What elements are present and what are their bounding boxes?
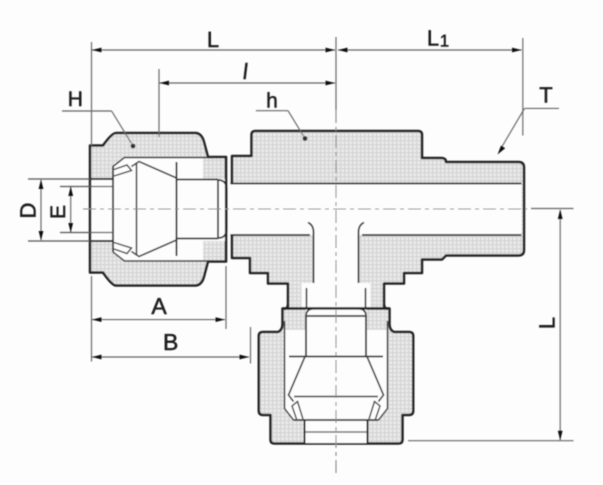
svg-text:D: D: [15, 203, 40, 219]
svg-text:1: 1: [440, 32, 449, 51]
svg-text:L: L: [427, 26, 439, 51]
svg-text:A: A: [151, 293, 167, 319]
svg-text:H: H: [68, 88, 83, 111]
svg-text:h: h: [266, 90, 278, 113]
svg-text:E: E: [47, 205, 70, 219]
svg-text:B: B: [163, 329, 178, 355]
svg-text:L: L: [207, 27, 219, 52]
svg-text:L: L: [535, 317, 560, 329]
svg-text:T: T: [539, 83, 552, 108]
